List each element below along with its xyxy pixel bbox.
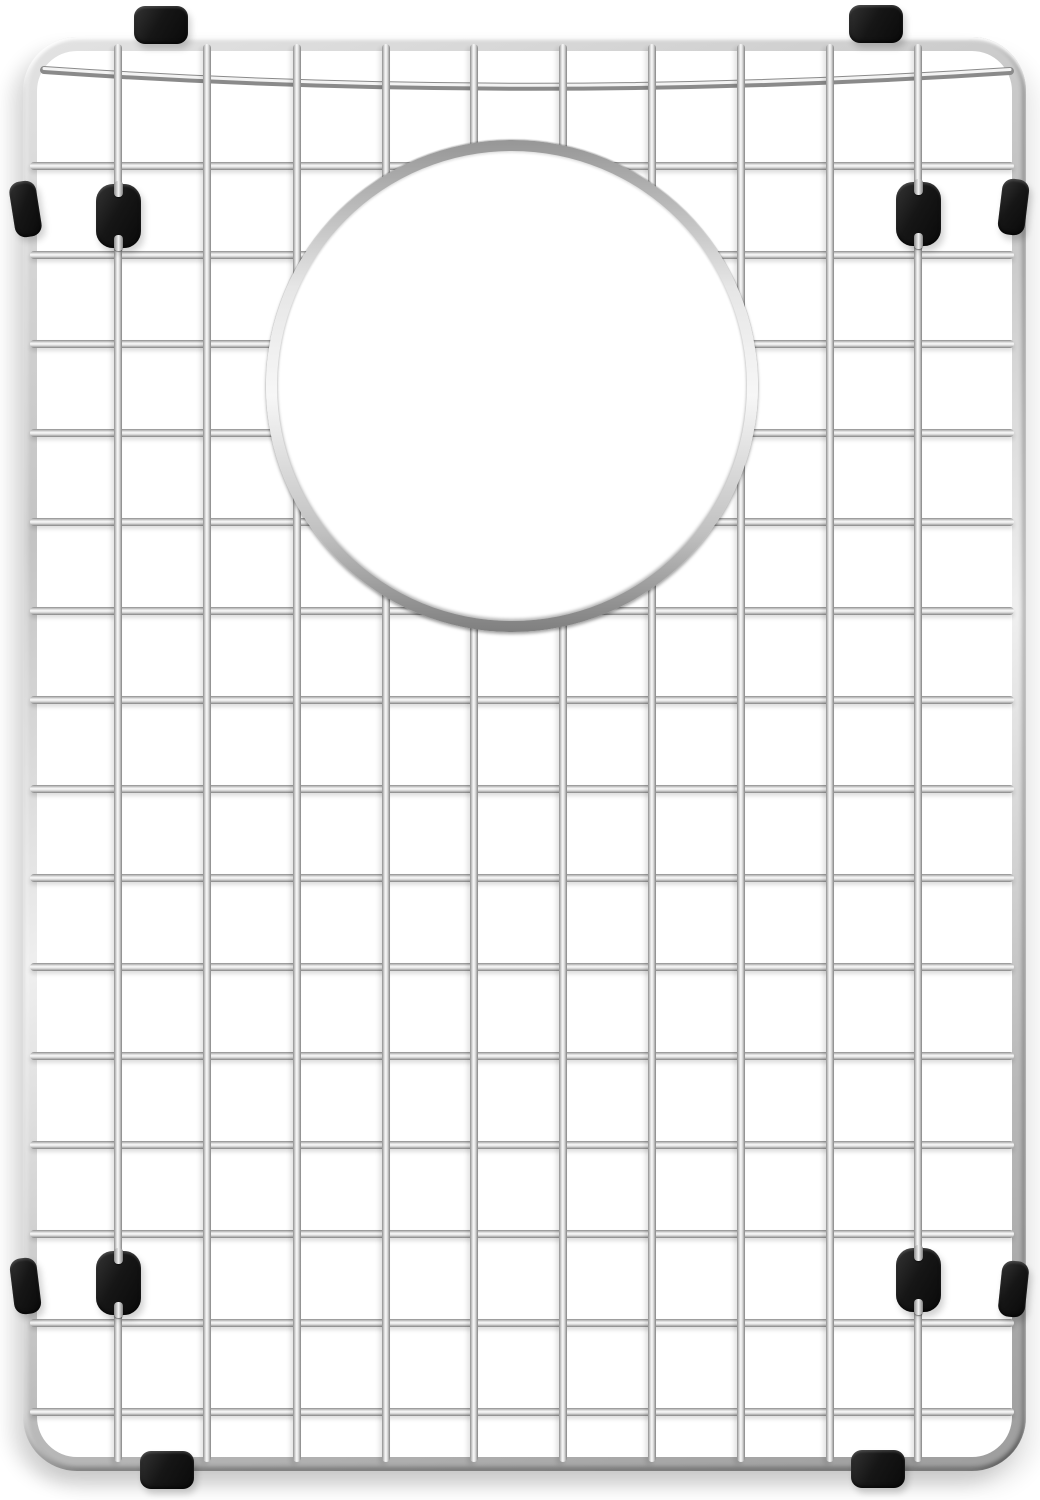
grid-wire-v-8: [737, 44, 745, 1462]
rubber-bumper-4: [997, 1260, 1030, 1319]
grid-wire-v-9: [826, 44, 834, 1462]
rubber-clip-1: [134, 6, 188, 44]
grid-wire-h-10: [30, 963, 1014, 971]
rubber-clip-3: [140, 1451, 194, 1489]
grid-wire-h-9: [30, 874, 1014, 882]
grid-wire-h-7: [30, 696, 1014, 704]
rubber-foot-wire-notch-bottom-2: [914, 233, 923, 249]
rubber-foot-wire-notch-top-1: [114, 181, 123, 197]
grid-wire-h-14: [30, 1319, 1014, 1327]
rubber-foot-wire-notch-top-4: [914, 1245, 923, 1261]
rubber-foot-wire-notch-bottom-1: [114, 235, 123, 251]
grid-wire-h-11: [30, 1052, 1014, 1060]
rubber-foot-wire-notch-top-3: [114, 1248, 123, 1264]
product-image: [0, 0, 1040, 1500]
rubber-clip-4: [851, 1450, 905, 1488]
grid-wire-h-12: [30, 1141, 1014, 1149]
rubber-foot-wire-notch-top-2: [914, 179, 923, 195]
rubber-clip-2: [849, 5, 903, 43]
grid-wire-h-13: [30, 1230, 1014, 1238]
drain-opening: [277, 151, 747, 621]
grid-wire-v-3: [293, 44, 301, 1462]
rubber-foot-wire-notch-bottom-4: [914, 1299, 923, 1315]
grid-wire-h-8: [30, 785, 1014, 793]
grid-wire-v-2: [203, 44, 211, 1462]
rubber-foot-wire-notch-bottom-3: [114, 1302, 123, 1318]
grid-wire-h-15: [30, 1408, 1014, 1416]
